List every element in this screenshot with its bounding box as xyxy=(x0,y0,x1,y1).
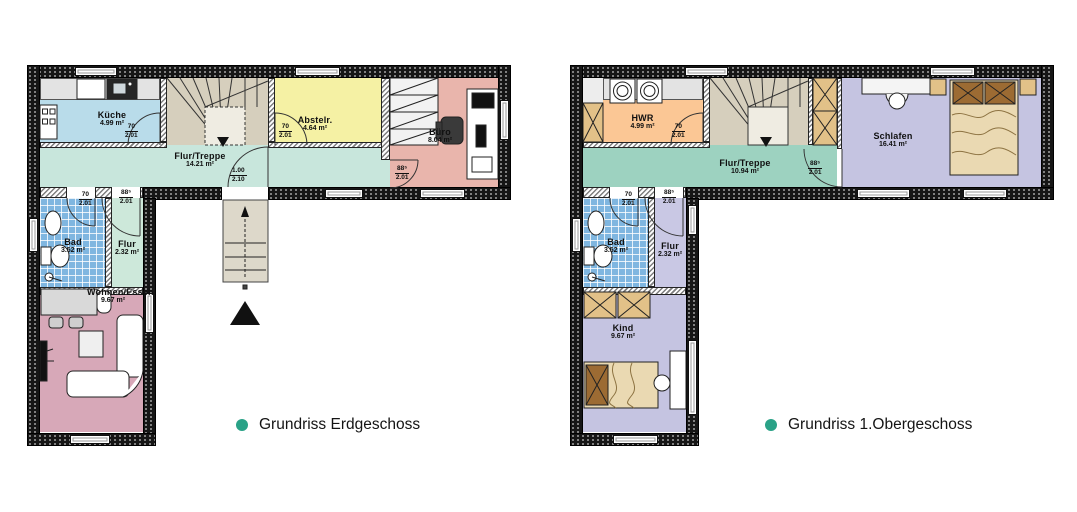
desk-icon xyxy=(670,351,686,409)
door-label-buero: 88⁵2.01 xyxy=(395,165,409,182)
caption-obergeschoss: Grundriss 1.Obergeschoss xyxy=(765,416,972,434)
dining-table-icon xyxy=(41,289,111,328)
door-label-flur: 88⁵2.01 xyxy=(119,189,133,206)
floorplan-erdgeschoss: Küche 4.99 m² Flur/Treppe 14.21 m² Abste… xyxy=(27,65,511,446)
stairs-icon xyxy=(710,78,808,147)
door-label-bad: 702.01 xyxy=(79,191,92,208)
eg-symbols xyxy=(27,65,511,446)
caption-text: Grundriss Erdgeschoss xyxy=(259,416,420,434)
cabinet-icon xyxy=(583,103,603,142)
office-chair-icon xyxy=(436,117,463,144)
caption-text: Grundriss 1.Obergeschoss xyxy=(788,416,972,434)
dresser-icon xyxy=(862,78,932,109)
shelf-icon xyxy=(390,78,438,145)
stove-icon xyxy=(40,105,57,139)
bullet-dot-icon xyxy=(236,419,248,431)
door-label-bad: 702.01 xyxy=(622,191,635,208)
entrance-steps xyxy=(223,200,268,289)
toilet-icon xyxy=(584,245,612,267)
washbasin-icon xyxy=(588,211,604,235)
double-bed-icon xyxy=(950,80,1018,175)
wardrobe-icon xyxy=(584,292,650,318)
shower-icon xyxy=(45,273,62,281)
washbasin-icon xyxy=(45,211,61,235)
floorplan-sheet: Küche 4.99 m² Flur/Treppe 14.21 m² Abste… xyxy=(0,0,1077,512)
door-label-kueche: 702.01 xyxy=(125,123,138,140)
coffee-table-icon xyxy=(79,331,103,357)
caption-erdgeschoss: Grundriss Erdgeschoss xyxy=(236,416,420,434)
washing-machine-icon xyxy=(610,79,662,103)
desk-icon xyxy=(467,89,498,179)
door-label-hwr: 702.01 xyxy=(672,123,685,140)
stairs-icon xyxy=(167,78,268,147)
single-bed-icon xyxy=(584,362,658,408)
door-label-entrance: 1.002.10 xyxy=(230,167,247,184)
bullet-dot-icon xyxy=(765,419,777,431)
door-label-abstellraum: 702.01 xyxy=(279,123,292,140)
og-symbols xyxy=(570,65,1054,446)
wardrobe-icon xyxy=(813,78,837,145)
floorplan-obergeschoss: HWR 4.99 m² Flur/Treppe 10.94 m² Schlafe… xyxy=(570,65,1054,446)
shower-icon xyxy=(588,273,605,281)
chair-icon xyxy=(654,375,670,391)
tv-icon xyxy=(40,341,54,381)
door-label-schlafen: 88⁵2.01 xyxy=(808,160,822,177)
toilet-icon xyxy=(41,245,69,267)
kitchen-sink-icon xyxy=(77,79,137,99)
door-label-flur: 88⁵2.01 xyxy=(662,189,676,206)
north-arrow-icon xyxy=(230,301,260,325)
